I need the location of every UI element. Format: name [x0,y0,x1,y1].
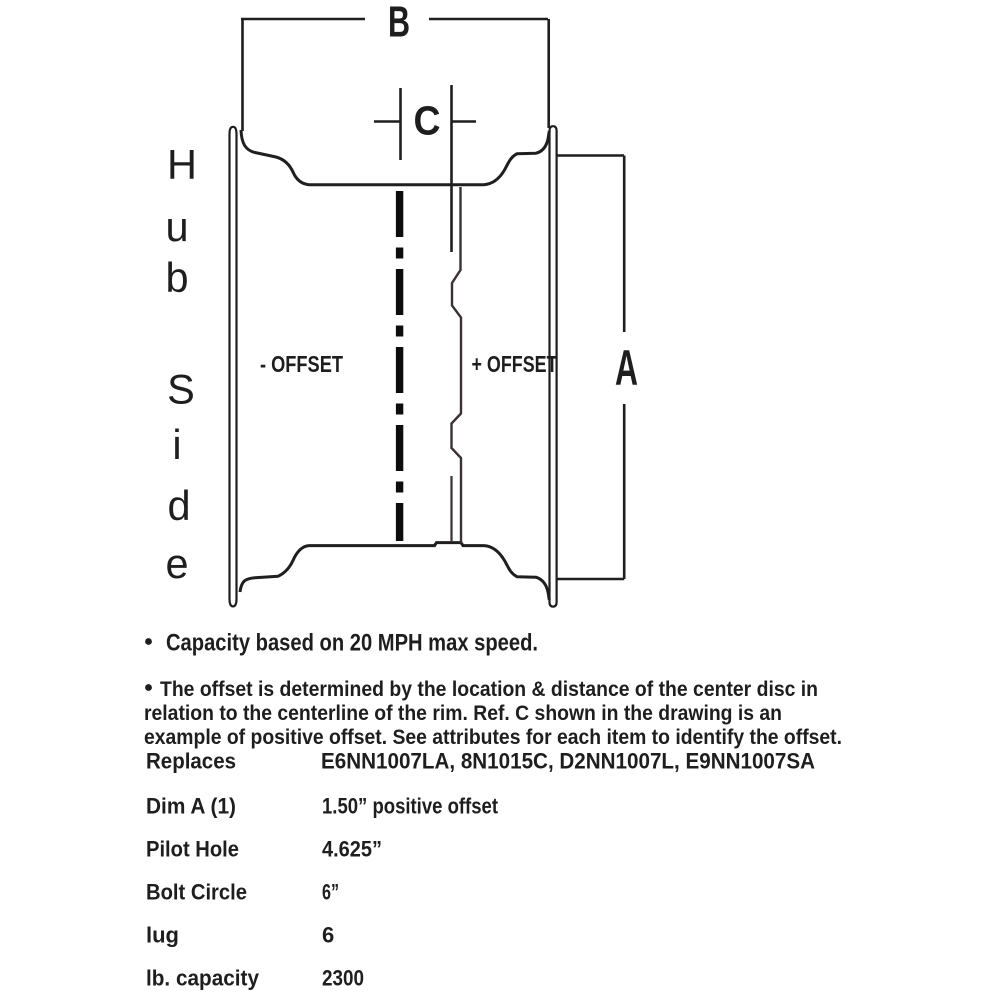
svg-text:6”: 6” [322,880,339,905]
svg-text:Dim A (1): Dim A (1) [146,794,236,819]
svg-text:b: b [165,254,188,301]
svg-text:A: A [615,340,638,396]
svg-text:1.50” positive offset: 1.50” positive offset [322,794,499,819]
svg-text:H: H [167,141,197,188]
svg-text:i: i [172,421,181,468]
svg-text:lb. capacity: lb. capacity [146,966,260,991]
svg-text:example of positive offset. Se: example of positive offset. See attribut… [144,726,842,749]
svg-text:E6NN1007LA, 8N1015C, D2NN1007L: E6NN1007LA, 8N1015C, D2NN1007L, E9NN1007… [321,749,815,774]
svg-text:S: S [167,366,195,413]
svg-text:6: 6 [322,923,334,948]
svg-text:The offset is determined by th: The offset is determined by the location… [160,678,818,701]
svg-text:C: C [414,98,441,144]
svg-text:4.625”: 4.625” [322,837,382,862]
svg-text:u: u [165,203,188,250]
svg-text:Bolt Circle: Bolt Circle [146,880,247,905]
svg-text:+ OFFSET: + OFFSET [472,351,558,377]
svg-text:Replaces: Replaces [146,749,236,774]
svg-text:Capacity based on 20 MPH max s: Capacity based on 20 MPH max speed. [166,630,538,657]
svg-text:2300: 2300 [322,966,364,991]
svg-text:B: B [388,0,410,47]
svg-text:Pilot Hole: Pilot Hole [146,837,239,862]
svg-text:- OFFSET: - OFFSET [260,351,343,377]
svg-text:e: e [165,540,188,587]
svg-text:relation to the centerline of: relation to the centerline of the rim. R… [144,702,782,725]
svg-text:lug: lug [146,923,179,948]
svg-text:d: d [167,482,190,529]
